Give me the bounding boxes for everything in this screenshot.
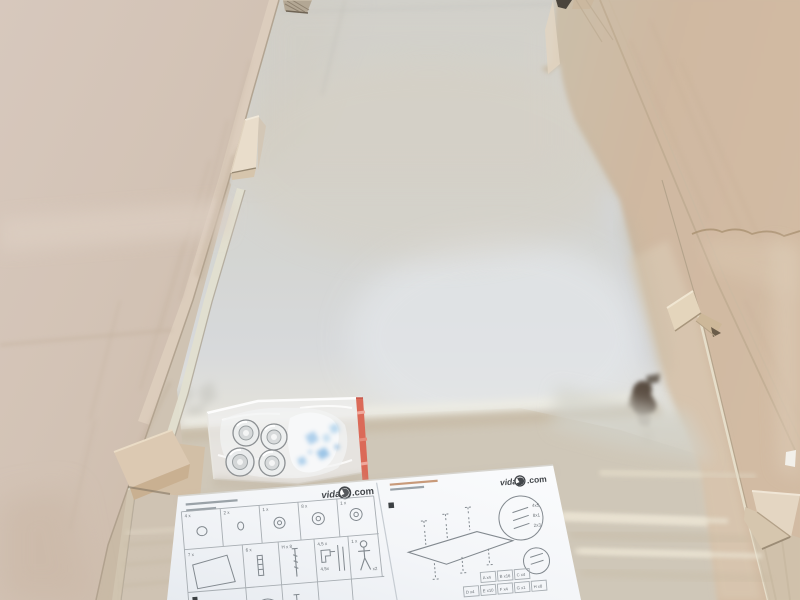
svg-text:B x16: B x16 [499, 573, 511, 579]
svg-text:H x8: H x8 [533, 583, 543, 589]
svg-text:D x4: D x4 [466, 589, 476, 595]
svg-text:4,5x: 4,5x [320, 566, 330, 572]
svg-text:4x5: 4x5 [532, 502, 540, 508]
svg-text:.com: .com [526, 474, 547, 486]
svg-text:E x10: E x10 [483, 587, 495, 593]
svg-text:8x1: 8x1 [533, 512, 541, 518]
svg-text:x2: x2 [372, 566, 378, 571]
svg-text:C x4: C x4 [516, 572, 526, 578]
svg-text:2x3: 2x3 [533, 522, 541, 528]
svg-text:F x4: F x4 [500, 586, 509, 592]
svg-text:4,5 x: 4,5 x [317, 541, 328, 547]
svg-text:H x 8: H x 8 [281, 544, 292, 550]
svg-text:A x4: A x4 [483, 575, 492, 581]
svg-text:G x1: G x1 [516, 585, 526, 591]
